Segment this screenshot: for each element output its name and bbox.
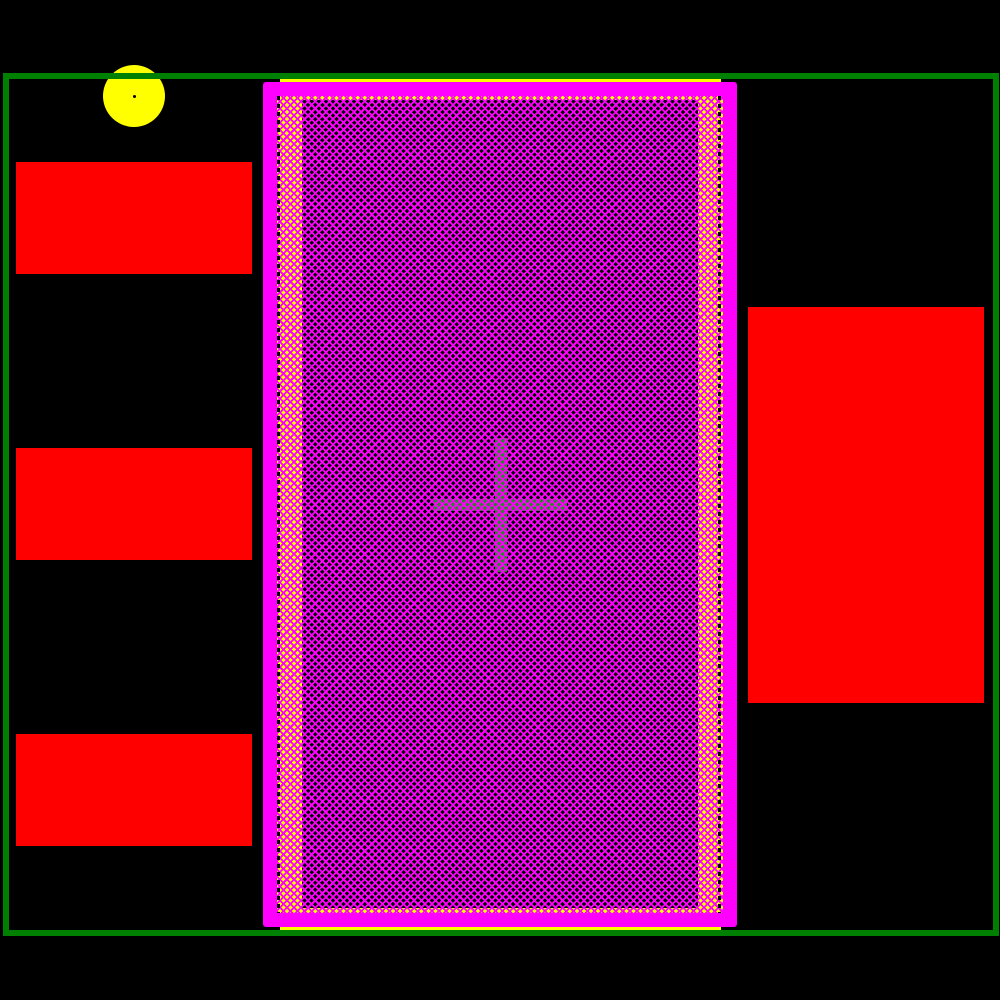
footprint-canvas: [0, 0, 1000, 1000]
courtyard-outline[interactable]: [3, 73, 999, 936]
